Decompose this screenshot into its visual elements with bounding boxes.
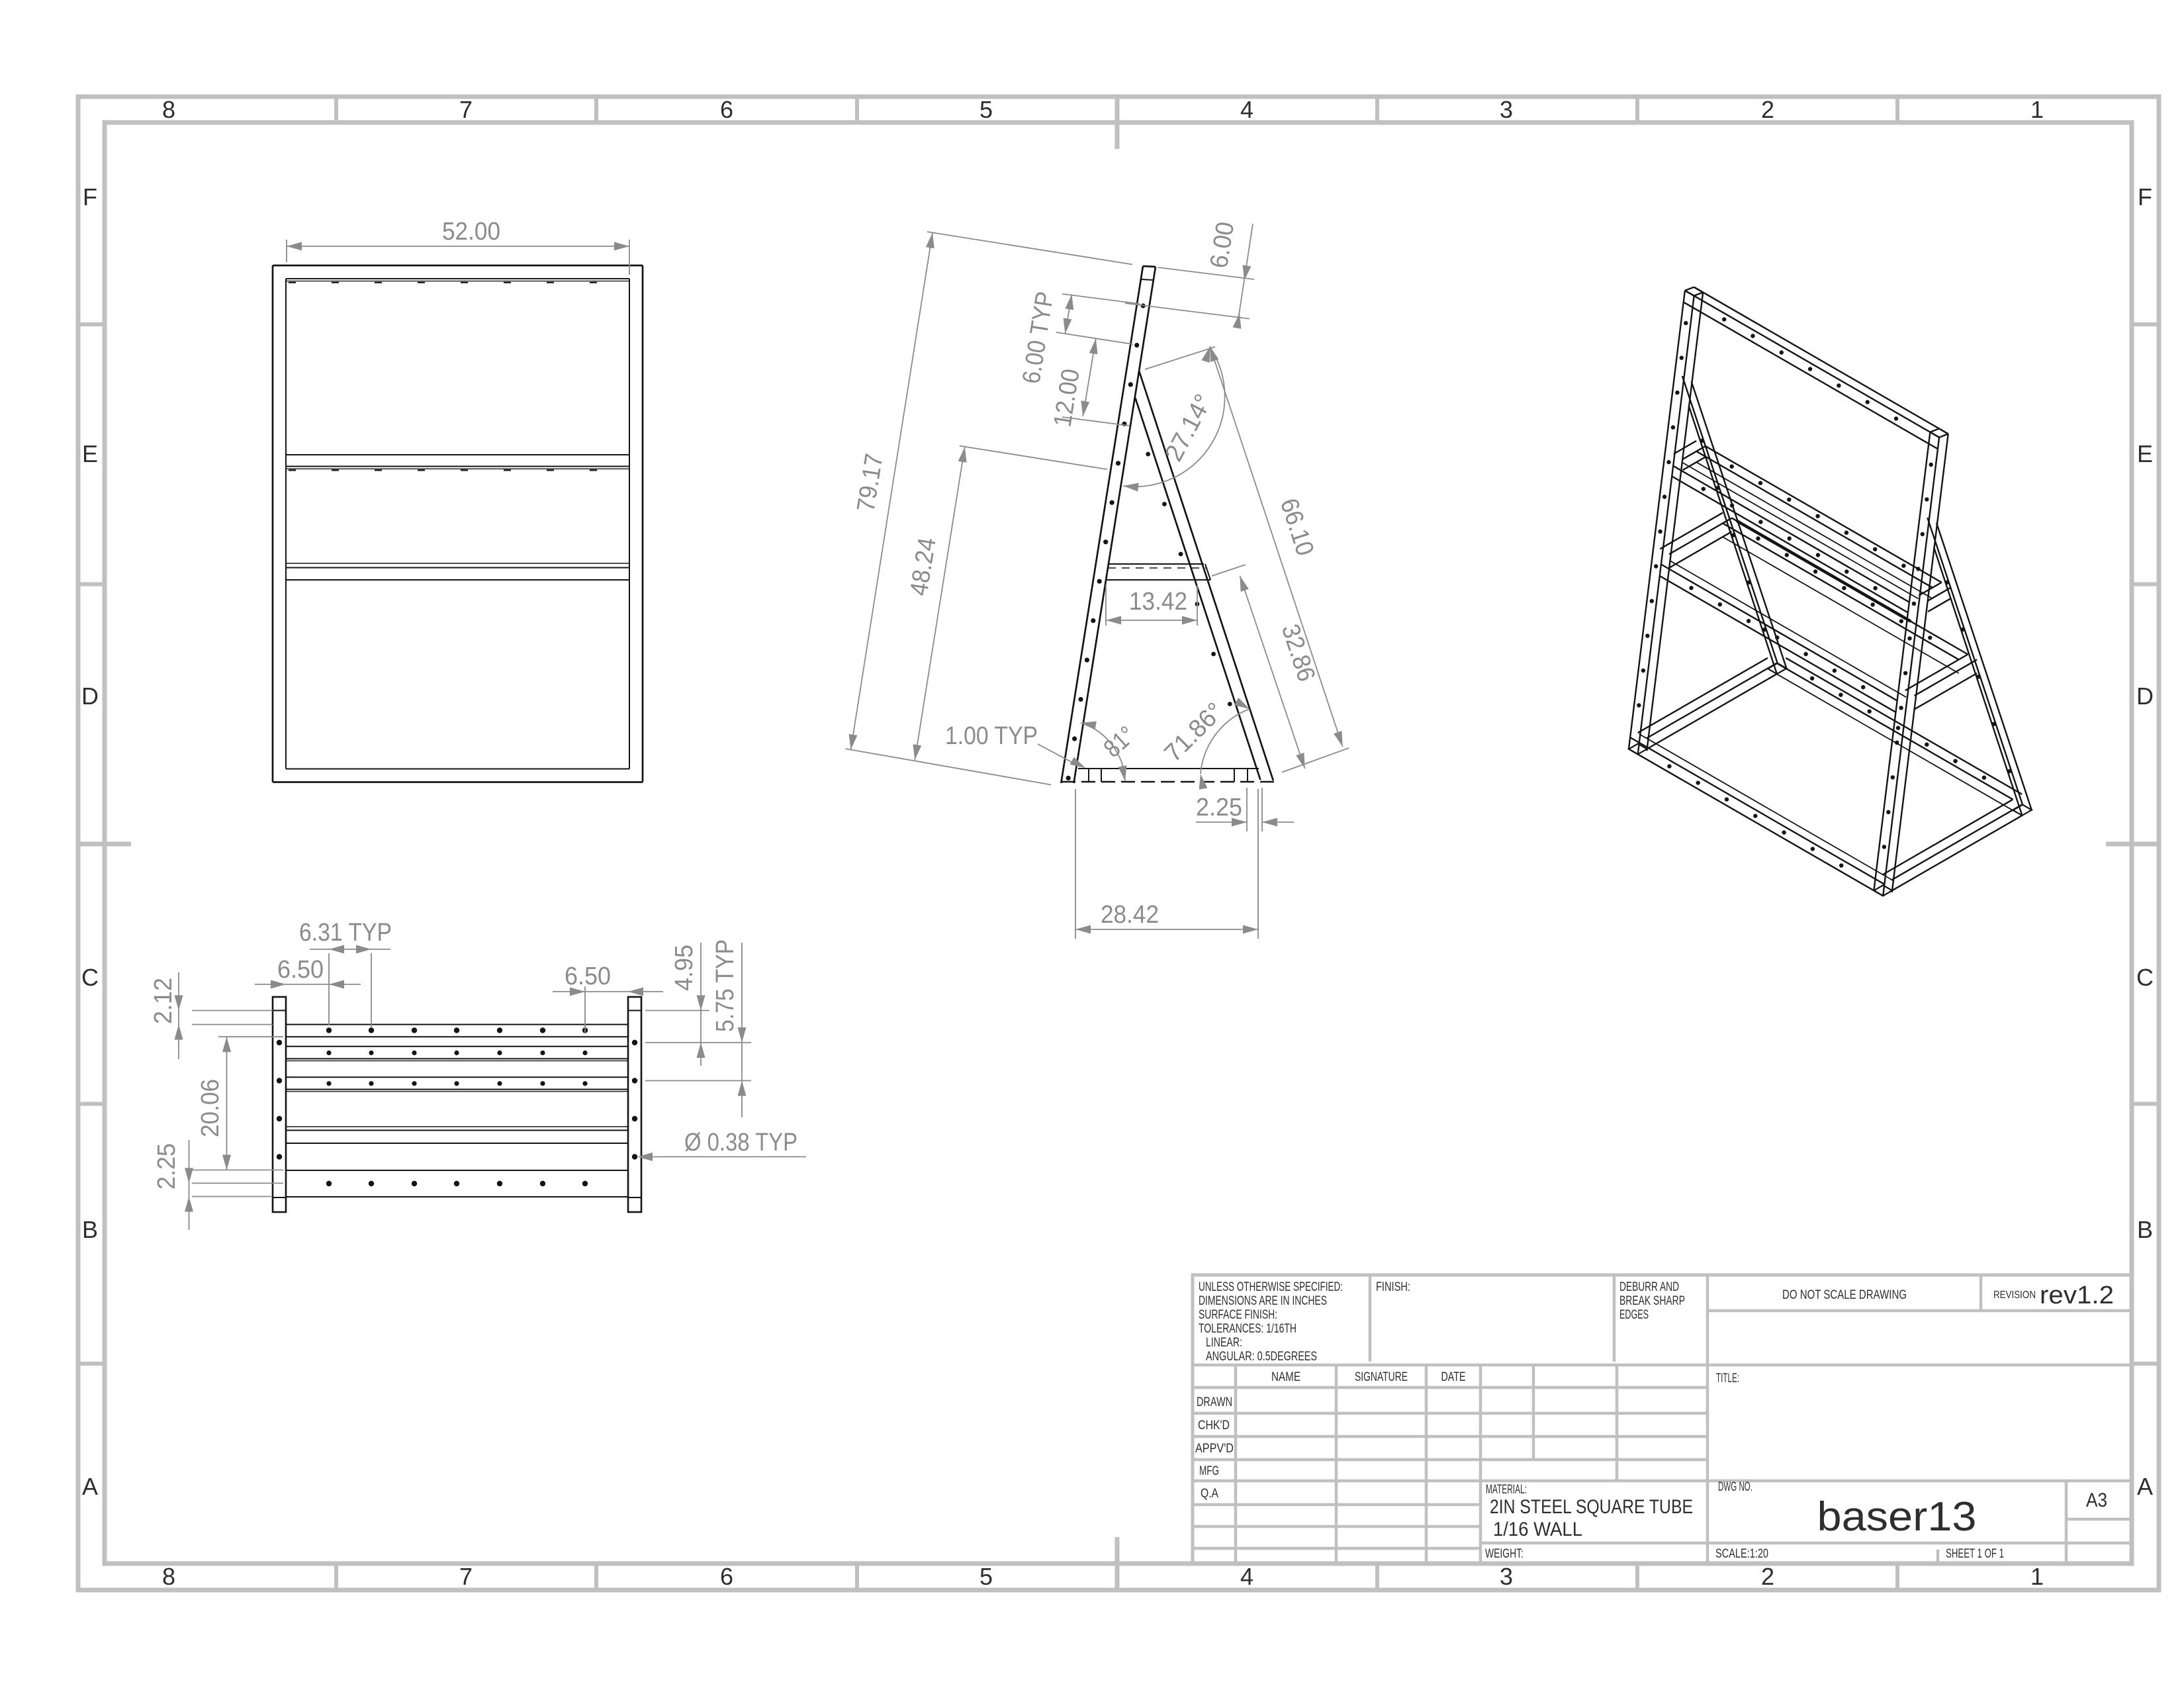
svg-text:2: 2 [1761,96,1774,123]
svg-text:E: E [2137,440,2153,467]
svg-text:4: 4 [1240,96,1253,123]
svg-text:3: 3 [1500,96,1513,123]
svg-text:DEBURR AND: DEBURR AND [1619,1280,1679,1294]
svg-text:DO NOT SCALE DRAWING: DO NOT SCALE DRAWING [1782,1288,1907,1302]
svg-text:D: D [2136,682,2154,710]
svg-text:F: F [83,183,97,211]
svg-text:CHK'D: CHK'D [1198,1419,1230,1432]
svg-text:2.25: 2.25 [1196,794,1242,821]
svg-text:A: A [82,1473,98,1500]
svg-text:4.95: 4.95 [670,945,698,991]
svg-text:LINEAR:: LINEAR: [1206,1336,1242,1350]
svg-text:SHEET 1 OF 1: SHEET 1 OF 1 [1946,1547,2004,1561]
svg-text:6: 6 [720,96,733,123]
svg-text:DWG NO.: DWG NO. [1718,1480,1752,1494]
svg-text:WEIGHT:: WEIGHT: [1485,1547,1524,1561]
svg-text:BREAK SHARP: BREAK SHARP [1619,1294,1685,1308]
svg-text:baser13: baser13 [1817,1494,1977,1540]
svg-text:8: 8 [162,96,175,123]
svg-text:5: 5 [979,96,993,123]
svg-text:1/16 WALL: 1/16 WALL [1493,1519,1582,1540]
svg-text:2: 2 [1761,1563,1774,1590]
svg-text:Ø 0.38 TYP: Ø 0.38 TYP [684,1129,797,1156]
svg-text:FINISH:: FINISH: [1376,1280,1410,1294]
svg-text:REVISION: REVISION [1993,1289,2036,1301]
svg-text:D: D [81,682,99,710]
svg-text:5.75 TYP: 5.75 TYP [711,939,739,1032]
svg-text:6.31 TYP: 6.31 TYP [299,919,392,947]
svg-text:MFG: MFG [1199,1464,1219,1478]
svg-text:2.25: 2.25 [153,1143,181,1190]
svg-text:SCALE:1:20: SCALE:1:20 [1715,1547,1768,1561]
svg-text:7: 7 [459,96,473,123]
svg-text:2IN STEEL SQUARE TUBE: 2IN STEEL SQUARE TUBE [1490,1496,1693,1518]
svg-text:MATERIAL:: MATERIAL: [1486,1483,1527,1497]
svg-text:7: 7 [459,1563,473,1590]
svg-text:4: 4 [1240,1563,1253,1590]
svg-text:C: C [2136,964,2154,991]
svg-text:1.00 TYP: 1.00 TYP [945,722,1038,750]
svg-text:NAME: NAME [1271,1370,1300,1384]
svg-text:E: E [82,440,98,467]
svg-text:B: B [82,1216,98,1243]
svg-text:rev1.2: rev1.2 [2040,1282,2114,1309]
svg-text:DIMENSIONS ARE IN INCHES: DIMENSIONS ARE IN INCHES [1199,1294,1327,1308]
svg-text:APPV'D: APPV'D [1195,1442,1234,1456]
svg-text:DATE: DATE [1441,1370,1466,1384]
svg-text:A: A [2137,1473,2153,1500]
svg-text:5: 5 [979,1563,993,1590]
svg-text:ANGULAR: 0.5DEGREES: ANGULAR: 0.5DEGREES [1206,1350,1317,1364]
svg-text:UNLESS OTHERWISE SPECIFIED:: UNLESS OTHERWISE SPECIFIED: [1199,1280,1343,1294]
svg-text:1: 1 [2030,1563,2044,1590]
svg-text:F: F [2138,183,2152,211]
svg-text:SIGNATURE: SIGNATURE [1355,1370,1408,1384]
svg-text:C: C [81,964,99,991]
svg-text:Q.A: Q.A [1201,1487,1218,1501]
svg-text:20.06: 20.06 [197,1079,224,1137]
svg-text:2.12: 2.12 [150,978,177,1024]
svg-text:52.00: 52.00 [442,218,500,246]
svg-text:28.42: 28.42 [1101,901,1159,929]
svg-text:6.50: 6.50 [277,956,324,984]
svg-text:SURFACE FINISH:: SURFACE FINISH: [1199,1308,1277,1322]
svg-text:DRAWN: DRAWN [1197,1395,1232,1409]
svg-text:EDGES: EDGES [1619,1308,1649,1322]
svg-text:6: 6 [720,1563,733,1590]
svg-text:8: 8 [162,1563,175,1590]
svg-text:3: 3 [1500,1563,1513,1590]
svg-text:13.42: 13.42 [1129,588,1187,616]
svg-text:6.50: 6.50 [565,962,611,990]
svg-text:B: B [2137,1216,2153,1243]
svg-text:1: 1 [2030,96,2044,123]
svg-text:A3: A3 [2086,1489,2107,1511]
svg-text:TITLE:: TITLE: [1716,1372,1739,1385]
svg-text:TOLERANCES: 1/16TH: TOLERANCES: 1/16TH [1199,1322,1297,1336]
